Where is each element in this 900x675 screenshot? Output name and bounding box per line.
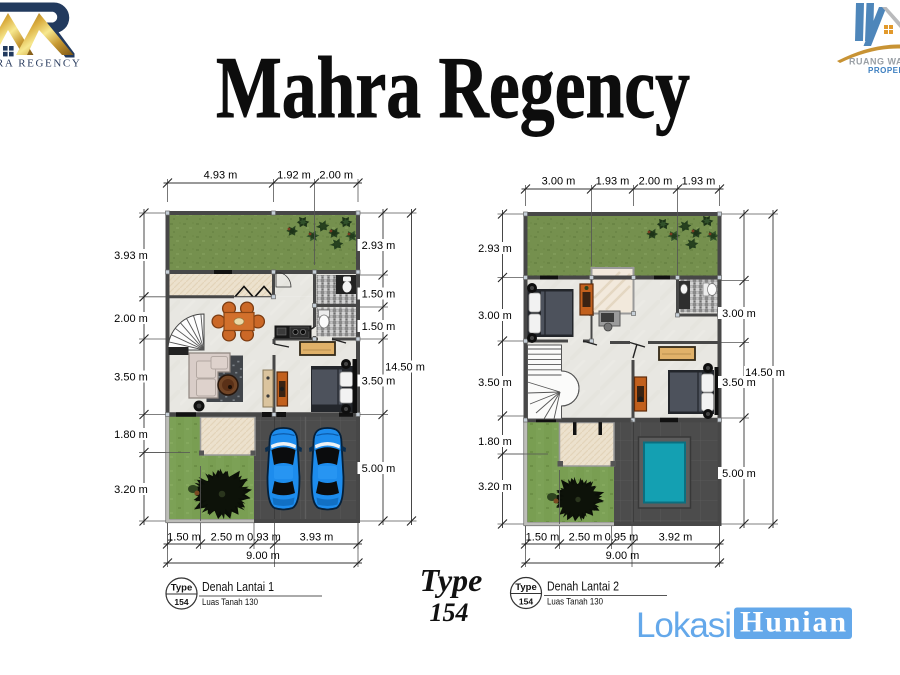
svg-text:PROPERT: PROPERT xyxy=(868,66,900,75)
svg-text:1.93 m: 1.93 m xyxy=(682,176,716,188)
svg-text:0.95 m: 0.95 m xyxy=(605,532,639,544)
svg-text:0.93 m: 0.93 m xyxy=(247,532,281,544)
svg-text:14.50 m: 14.50 m xyxy=(745,367,785,379)
svg-text:1.50 m: 1.50 m xyxy=(362,289,396,301)
svg-text:Type: Type xyxy=(515,582,536,593)
svg-text:1.80 m: 1.80 m xyxy=(478,436,512,448)
svg-text:3.50 m: 3.50 m xyxy=(362,376,396,388)
svg-text:Type: Type xyxy=(420,562,483,598)
svg-text:4.93 m: 4.93 m xyxy=(204,170,238,182)
svg-text:154: 154 xyxy=(519,597,533,607)
svg-text:3.50 m: 3.50 m xyxy=(478,377,512,389)
svg-text:3.50 m: 3.50 m xyxy=(114,372,148,384)
svg-text:3.00 m: 3.00 m xyxy=(478,310,512,322)
svg-text:5.00 m: 5.00 m xyxy=(362,463,396,475)
svg-text:Denah Lantai 1: Denah Lantai 1 xyxy=(202,579,274,594)
svg-text:Luas Tanah 130: Luas Tanah 130 xyxy=(202,597,258,607)
svg-text:3.93 m: 3.93 m xyxy=(114,250,148,262)
svg-text:1.50 m: 1.50 m xyxy=(526,532,560,544)
svg-text:Denah Lantai 2: Denah Lantai 2 xyxy=(547,579,619,594)
svg-text:2.00 m: 2.00 m xyxy=(639,176,673,188)
svg-text:2.50 m: 2.50 m xyxy=(569,532,603,544)
svg-text:2.50 m: 2.50 m xyxy=(211,532,245,544)
svg-text:Type: Type xyxy=(171,583,192,594)
svg-text:3.92 m: 3.92 m xyxy=(659,532,693,544)
svg-text:9.00 m: 9.00 m xyxy=(606,550,640,562)
svg-text:Lokasi: Lokasi xyxy=(636,606,732,645)
svg-text:5.00 m: 5.00 m xyxy=(722,468,756,480)
svg-text:154: 154 xyxy=(174,597,188,607)
svg-text:Hunian: Hunian xyxy=(740,606,846,639)
svg-text:3.00 m: 3.00 m xyxy=(542,176,576,188)
svg-text:RUANG WA: RUANG WA xyxy=(849,57,900,67)
svg-text:2.93 m: 2.93 m xyxy=(478,243,512,255)
svg-text:RA REGENCY: RA REGENCY xyxy=(0,58,81,70)
svg-text:1.50 m: 1.50 m xyxy=(167,532,201,544)
svg-text:3.00 m: 3.00 m xyxy=(722,308,756,320)
svg-text:1.50 m: 1.50 m xyxy=(362,321,396,333)
svg-text:3.20 m: 3.20 m xyxy=(114,484,148,496)
svg-text:154: 154 xyxy=(430,598,469,627)
svg-text:2.00 m: 2.00 m xyxy=(114,313,148,325)
svg-text:2.93 m: 2.93 m xyxy=(362,240,396,252)
svg-text:1.92 m: 1.92 m xyxy=(277,170,311,182)
svg-text:3.20 m: 3.20 m xyxy=(478,481,512,493)
svg-text:3.93 m: 3.93 m xyxy=(300,532,334,544)
svg-text:2.00 m: 2.00 m xyxy=(319,170,353,182)
svg-text:Mahra Regency: Mahra Regency xyxy=(216,40,690,137)
svg-text:1.93 m: 1.93 m xyxy=(596,176,630,188)
svg-text:1.80 m: 1.80 m xyxy=(114,429,148,441)
svg-text:Luas Tanah 130: Luas Tanah 130 xyxy=(547,597,603,607)
svg-text:9.00 m: 9.00 m xyxy=(246,550,280,562)
svg-text:14.50 m: 14.50 m xyxy=(385,362,425,374)
